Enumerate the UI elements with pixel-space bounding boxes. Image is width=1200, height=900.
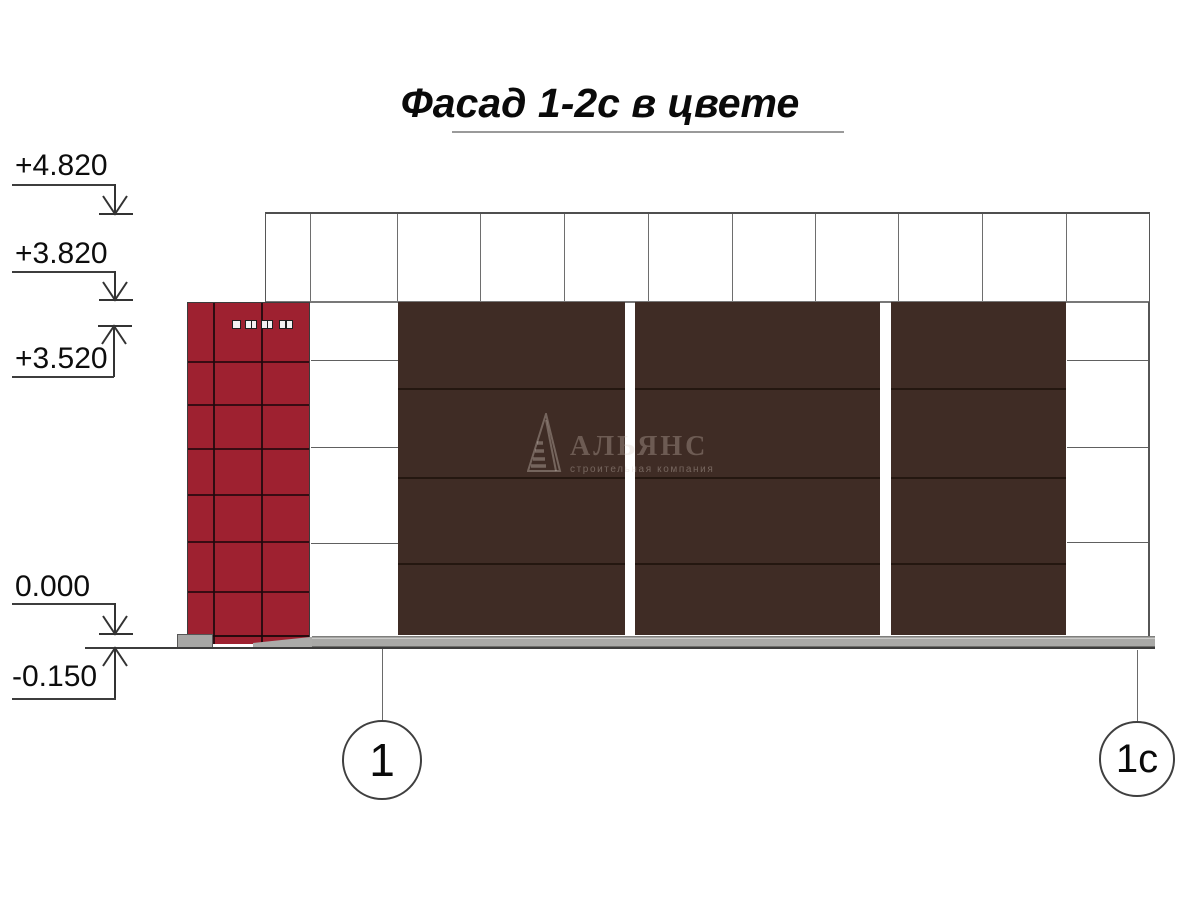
axis-bubble-1: 1 bbox=[342, 720, 422, 800]
elevation-underline bbox=[12, 698, 116, 700]
wall-joint-line bbox=[815, 214, 816, 301]
company-watermark: АЛЬЯНС строительная компания bbox=[527, 413, 727, 477]
elevation-label: +3.820 bbox=[15, 237, 108, 271]
base-block bbox=[177, 634, 213, 648]
elevation-underline bbox=[12, 376, 114, 378]
sign-square bbox=[279, 320, 293, 329]
wall-joint-line bbox=[311, 447, 398, 448]
watermark-tagline: строительная компания bbox=[570, 464, 714, 475]
tower-joint-line bbox=[188, 494, 309, 496]
wall-joint-line bbox=[648, 214, 649, 301]
sign-square-divider bbox=[267, 321, 269, 328]
elevation-arrow-down-icon bbox=[95, 184, 137, 218]
elevation-label: +4.820 bbox=[15, 149, 108, 183]
panel-joint-line bbox=[891, 563, 1066, 565]
wall-joint-line bbox=[982, 214, 983, 301]
wall-joint-line bbox=[310, 214, 311, 301]
sign-square-divider bbox=[285, 321, 287, 328]
axis-leader-line bbox=[382, 649, 383, 721]
wall-joint-line bbox=[1067, 447, 1148, 448]
panel-joint-line bbox=[398, 388, 625, 390]
sign-square bbox=[232, 320, 241, 329]
wall-joint-line bbox=[1067, 360, 1148, 361]
wall-joint-line bbox=[898, 214, 899, 301]
wall-joint-line bbox=[1067, 542, 1148, 543]
axis-bubble-1c: 1с bbox=[1099, 721, 1175, 797]
panel-joint-line bbox=[398, 563, 625, 565]
wall-joint-line bbox=[397, 214, 398, 301]
red-tile-tower bbox=[187, 302, 310, 644]
watermark-company: АЛЬЯНС bbox=[570, 433, 714, 461]
tower-joint-line bbox=[188, 541, 309, 543]
axis-label: 1 bbox=[369, 733, 395, 787]
panel-joint-line bbox=[891, 388, 1066, 390]
sign-square-divider bbox=[251, 321, 253, 328]
tower-joint-line bbox=[188, 361, 309, 363]
watermark-text: АЛЬЯНС строительная компания bbox=[570, 413, 714, 475]
wall-joint-line bbox=[311, 543, 398, 544]
elevation-label: +3.520 bbox=[15, 342, 108, 376]
panel-joint-line bbox=[635, 388, 880, 390]
tower-joint-line bbox=[188, 591, 309, 593]
wall-joint-line bbox=[564, 214, 565, 301]
elevation-label: 0.000 bbox=[15, 570, 90, 604]
ground-line bbox=[85, 647, 1155, 649]
elevation-label: -0.150 bbox=[12, 660, 97, 694]
wall-joint-line bbox=[1066, 214, 1067, 301]
brown-panel-3 bbox=[891, 302, 1066, 635]
panel-joint-line bbox=[635, 477, 880, 479]
axis-leader-line bbox=[1137, 650, 1138, 721]
elevation-arrow-up-icon bbox=[95, 648, 137, 699]
panel-joint-line bbox=[635, 563, 880, 565]
title-underline bbox=[452, 131, 844, 133]
tower-joint-line bbox=[188, 404, 309, 406]
wall-joint-line bbox=[311, 360, 398, 361]
wall-joint-line bbox=[732, 214, 733, 301]
pyramid-logo-icon bbox=[527, 413, 563, 473]
sign-square bbox=[261, 320, 273, 329]
elevation-arrow-down-icon bbox=[95, 271, 137, 302]
facade-drawing: Фасад 1-2с в цвете bbox=[0, 0, 1200, 900]
axis-label: 1с bbox=[1116, 737, 1158, 782]
tower-joint-line bbox=[188, 448, 309, 450]
sign-square bbox=[245, 320, 257, 329]
panel-joint-line bbox=[398, 477, 625, 479]
panel-joint-line bbox=[891, 477, 1066, 479]
elevation-arrow-down-icon bbox=[95, 603, 137, 636]
page-title: Фасад 1-2с в цвете bbox=[0, 80, 1200, 127]
wall-joint-line bbox=[480, 214, 481, 301]
wall-right-edge bbox=[1148, 302, 1150, 636]
